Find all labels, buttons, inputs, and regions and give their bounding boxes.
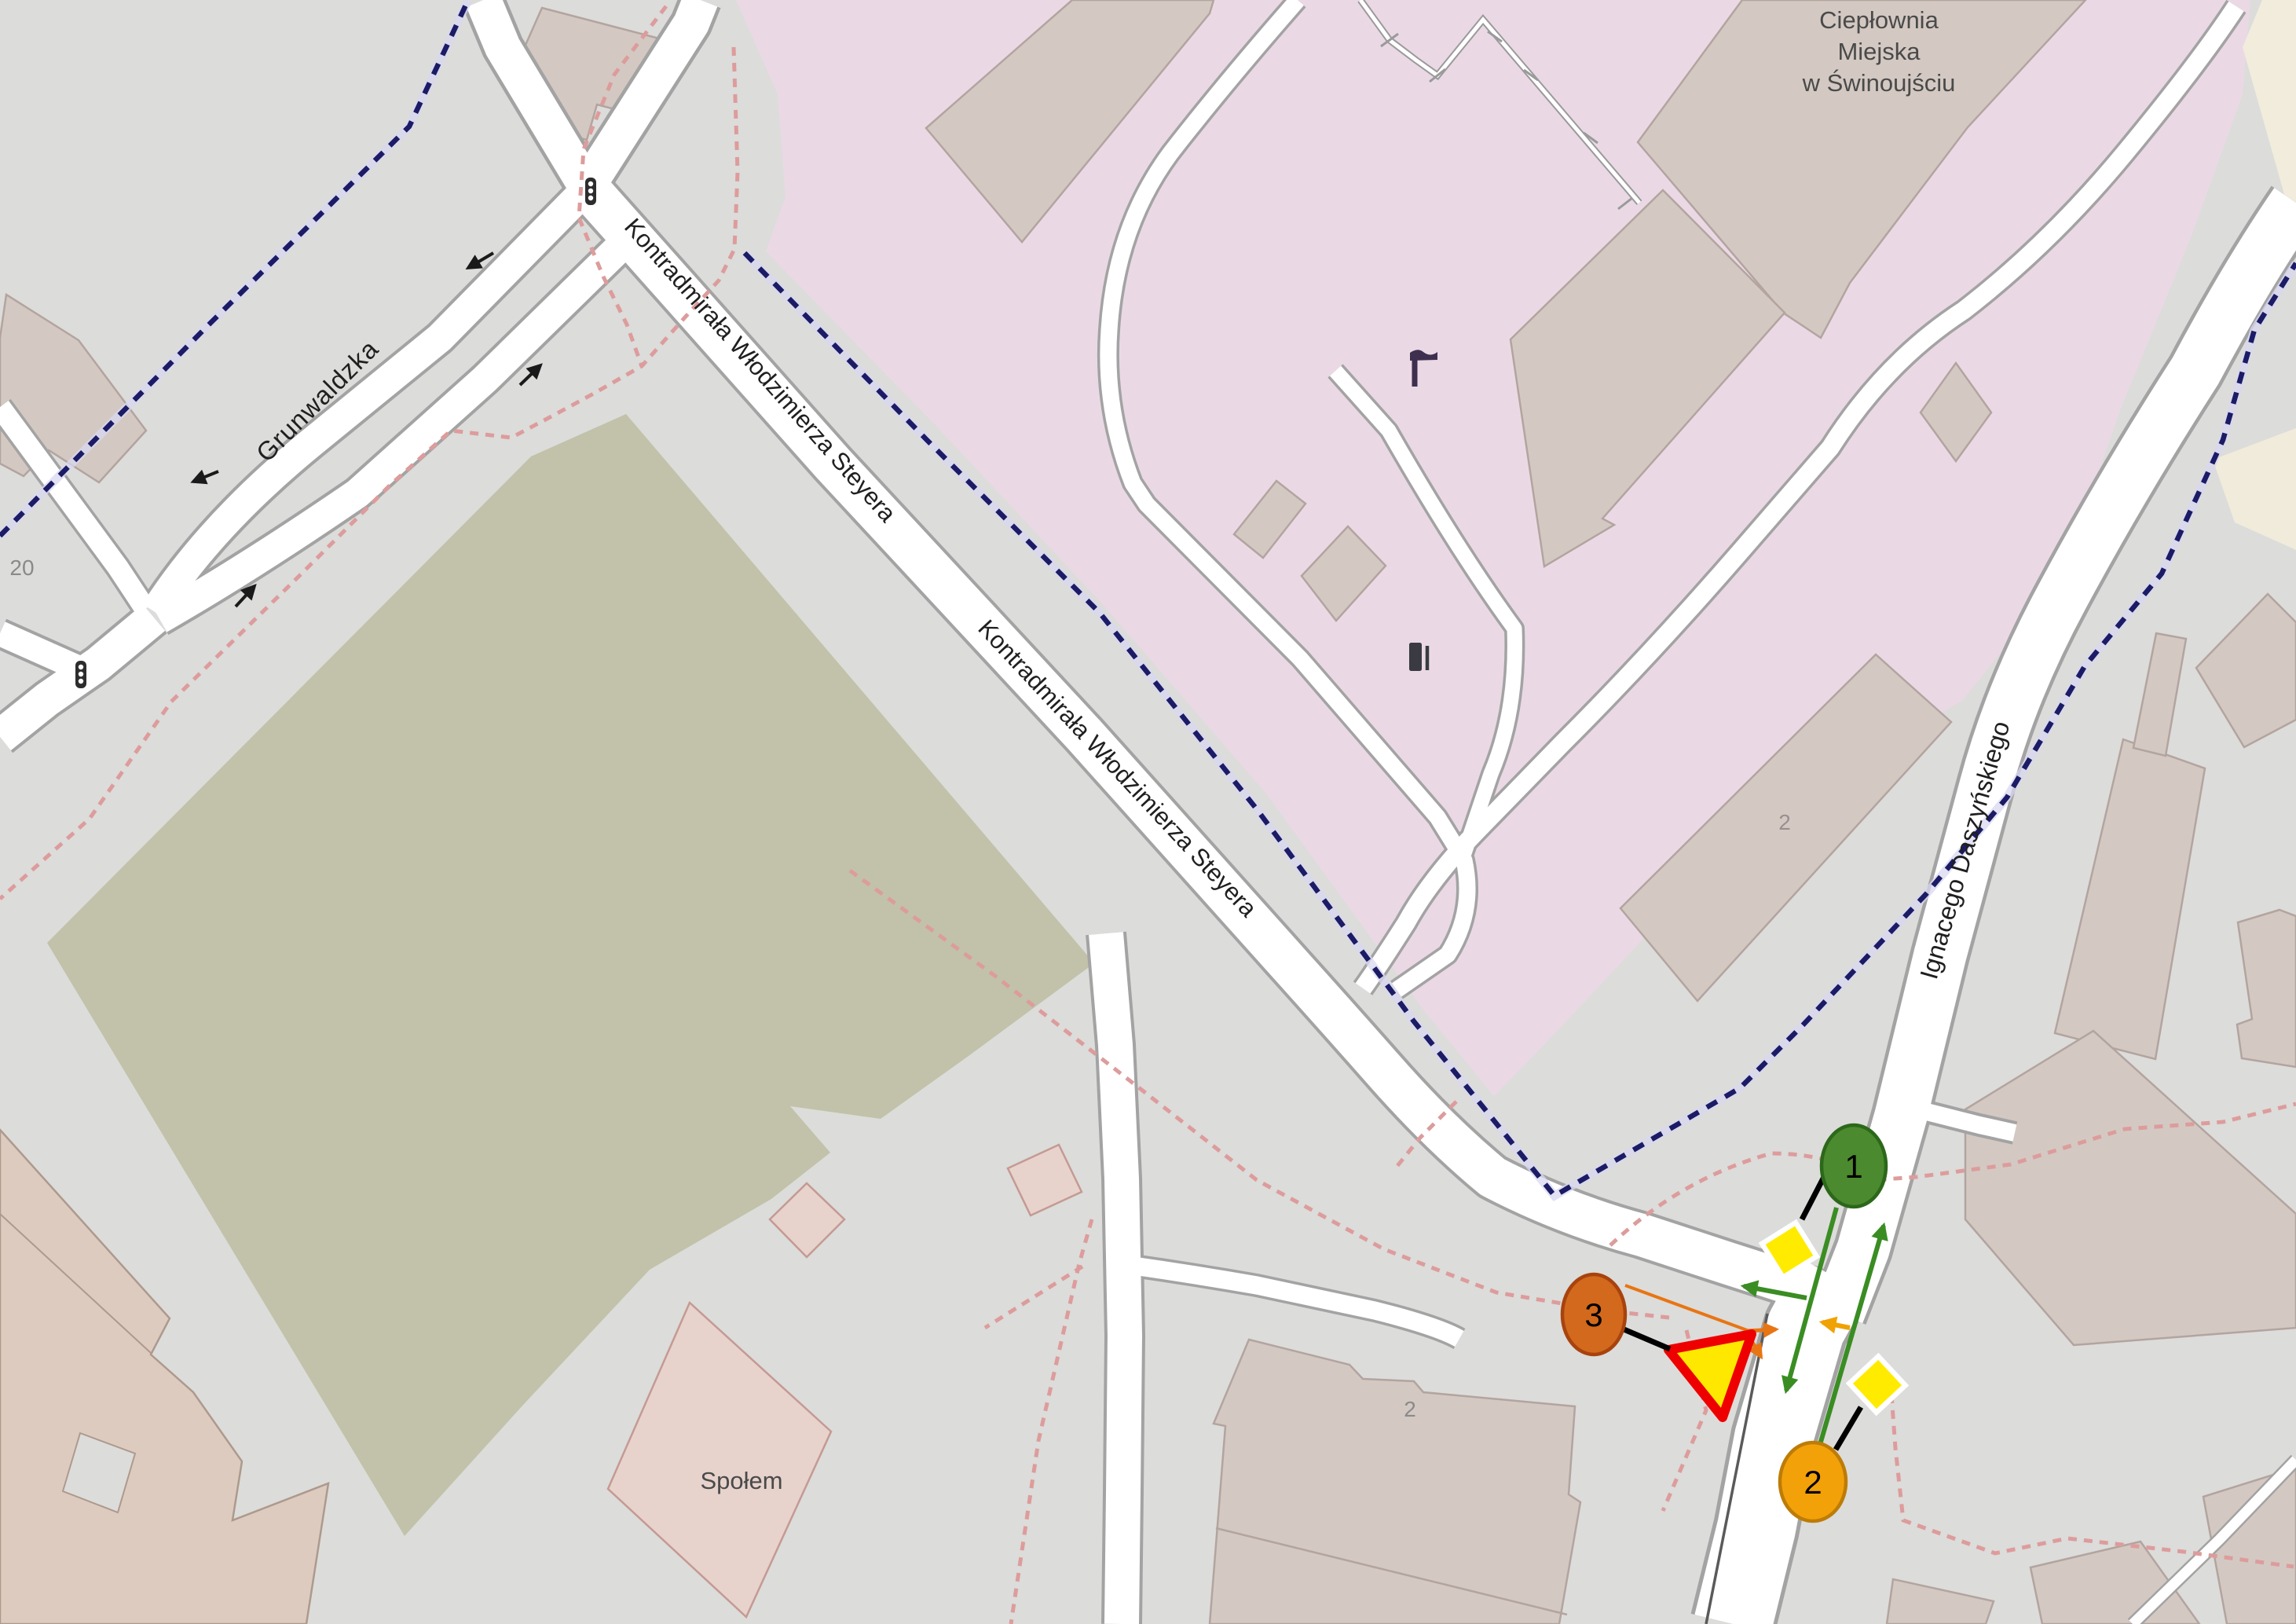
svg-text:2: 2 — [1803, 1464, 1822, 1501]
svg-text:20: 20 — [9, 555, 34, 580]
svg-text:1: 1 — [1844, 1148, 1862, 1185]
svg-text:3: 3 — [1584, 1296, 1602, 1333]
svg-text:w Świnoujściu: w Świnoujściu — [1802, 68, 1956, 97]
svg-text:Społem: Społem — [700, 1467, 782, 1494]
svg-text:Ciepłownia: Ciepłownia — [1819, 6, 1939, 34]
svg-text:2: 2 — [1404, 1397, 1416, 1421]
svg-text:Miejska: Miejska — [1837, 38, 1921, 65]
svg-text:2: 2 — [1778, 810, 1791, 834]
